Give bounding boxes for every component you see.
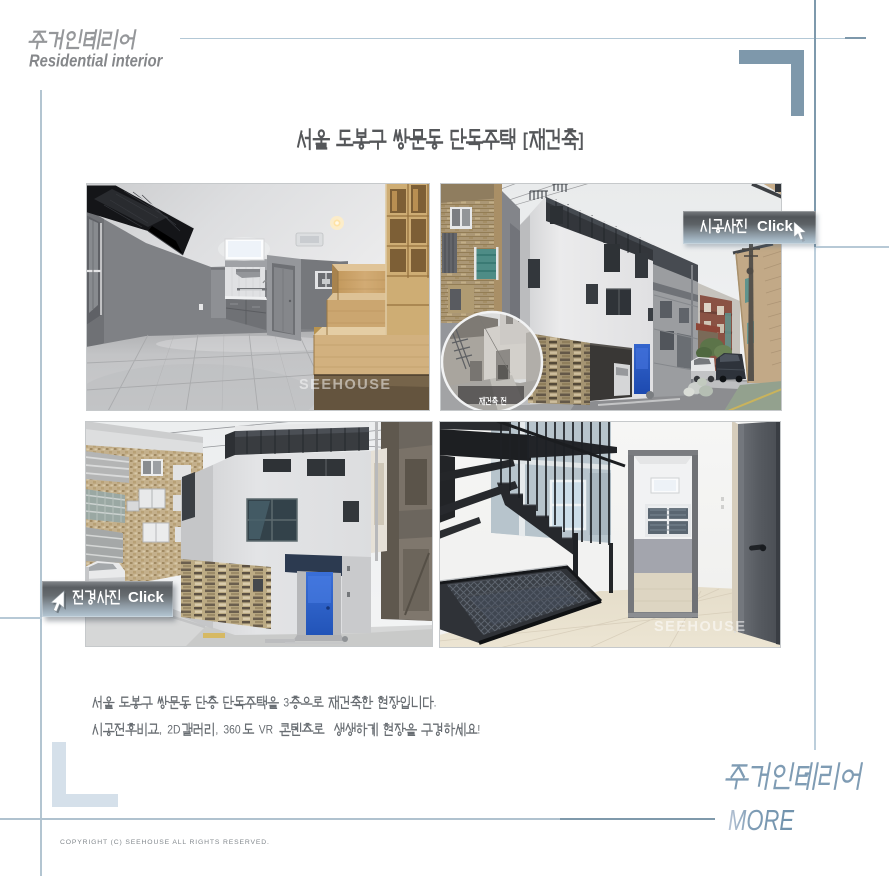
svg-text:[: [: [523, 128, 528, 150]
svg-text:,: ,: [159, 724, 162, 737]
svg-text:!: !: [477, 724, 480, 737]
svg-text:]: ]: [579, 128, 584, 150]
svg-text:.: .: [434, 697, 437, 710]
svg-text:VR: VR: [259, 724, 273, 737]
svg-text:SEEHOUSE: SEEHOUSE: [654, 619, 747, 635]
svg-text:MORE: MORE: [728, 805, 794, 837]
svg-text:3: 3: [283, 697, 289, 710]
svg-text:360: 360: [223, 724, 240, 737]
svg-text:,: ,: [215, 724, 218, 737]
svg-text:SEEHOUSE: SEEHOUSE: [299, 377, 392, 393]
svg-text:2D: 2D: [167, 724, 180, 737]
